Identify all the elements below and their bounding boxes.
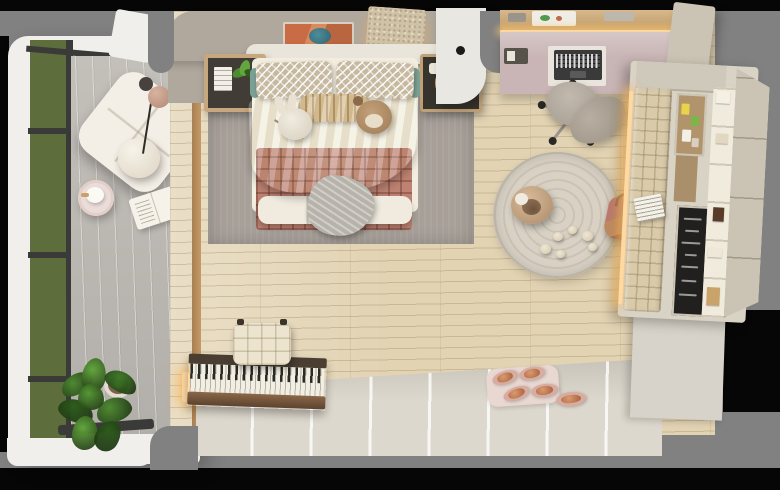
background-notch	[148, 11, 174, 73]
cork-board-small	[674, 155, 698, 202]
shelf-book	[713, 207, 725, 222]
chalk-scribble	[681, 266, 698, 269]
pendant-lamp-shade	[148, 86, 170, 108]
teapot	[86, 187, 104, 203]
plush-toy	[588, 243, 597, 251]
desk-tray-right	[604, 12, 634, 21]
shelf-book	[716, 133, 729, 144]
shelf-book	[708, 247, 723, 258]
round-cushion	[118, 138, 160, 178]
desk-shelf	[500, 10, 686, 30]
shelf-book	[716, 91, 731, 104]
magazine-stack	[214, 67, 232, 91]
reading-nook-unit	[617, 61, 764, 328]
desk-tray	[508, 13, 526, 22]
background-notch	[150, 426, 198, 470]
plush-toy	[556, 250, 565, 258]
pinned-note	[681, 103, 690, 114]
deer-plush	[356, 100, 392, 134]
plush-toy	[540, 244, 551, 254]
room-render	[0, 0, 780, 490]
window-mullion	[28, 128, 68, 134]
desk-board	[532, 11, 576, 26]
pendant-lamp-top	[139, 77, 153, 91]
chalk-scribble	[681, 280, 696, 283]
cork-board	[674, 93, 707, 156]
pinned-note	[691, 116, 700, 126]
chalk-scribble	[681, 242, 700, 245]
chalk-scribble	[685, 254, 697, 257]
chalk-scribble	[684, 218, 702, 221]
plant-leaf	[101, 365, 140, 399]
piano-bench	[233, 323, 291, 365]
pinned-note	[682, 129, 692, 141]
plush-toy	[568, 226, 577, 234]
donut-pouf	[511, 186, 553, 224]
bunny-plush	[278, 108, 312, 140]
divider-wall	[436, 8, 486, 104]
round-rug	[493, 152, 621, 278]
plant-leaf	[78, 384, 104, 410]
letterbox-bottom	[0, 468, 780, 490]
window-mullion	[28, 252, 68, 258]
plush-toy	[582, 231, 593, 241]
shelf-book	[706, 287, 720, 306]
desk-organizer	[504, 48, 528, 64]
chalk-scribble	[685, 230, 699, 233]
chalk-scribble	[679, 293, 697, 296]
pinned-note	[691, 138, 698, 147]
plush-toy	[553, 232, 563, 241]
potted-plant	[52, 356, 152, 460]
wall-hook	[456, 46, 465, 55]
